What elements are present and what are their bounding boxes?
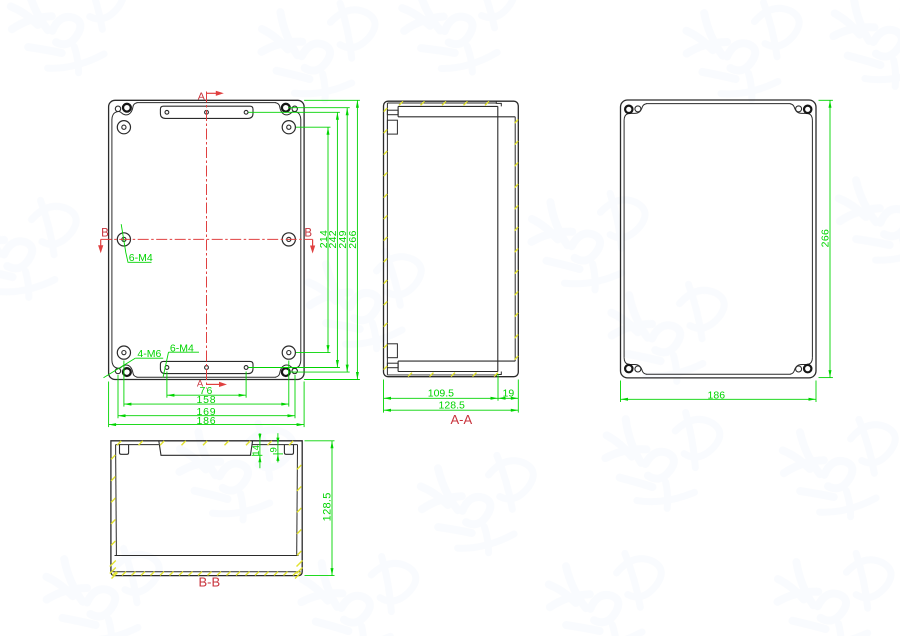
svg-text:6-M4: 6-M4 <box>129 252 153 264</box>
svg-text:9: 9 <box>269 447 280 452</box>
svg-text:109.5: 109.5 <box>428 388 454 400</box>
svg-text:266: 266 <box>820 229 832 247</box>
svg-text:B-B: B-B <box>198 574 220 589</box>
svg-text:186: 186 <box>197 415 217 427</box>
svg-text:14: 14 <box>251 445 262 456</box>
svg-text:158: 158 <box>197 394 217 406</box>
svg-text:B: B <box>304 228 312 240</box>
svg-text:A-A: A-A <box>450 412 472 427</box>
svg-text:A: A <box>198 91 205 103</box>
svg-text:B: B <box>101 227 109 239</box>
svg-text:266: 266 <box>347 230 359 248</box>
svg-text:128.5: 128.5 <box>439 399 465 411</box>
svg-text:6-M4: 6-M4 <box>170 342 194 354</box>
svg-text:128.5: 128.5 <box>322 492 334 521</box>
svg-text:4-M6: 4-M6 <box>137 348 161 360</box>
svg-text:19: 19 <box>503 388 515 400</box>
svg-text:186: 186 <box>708 389 726 401</box>
